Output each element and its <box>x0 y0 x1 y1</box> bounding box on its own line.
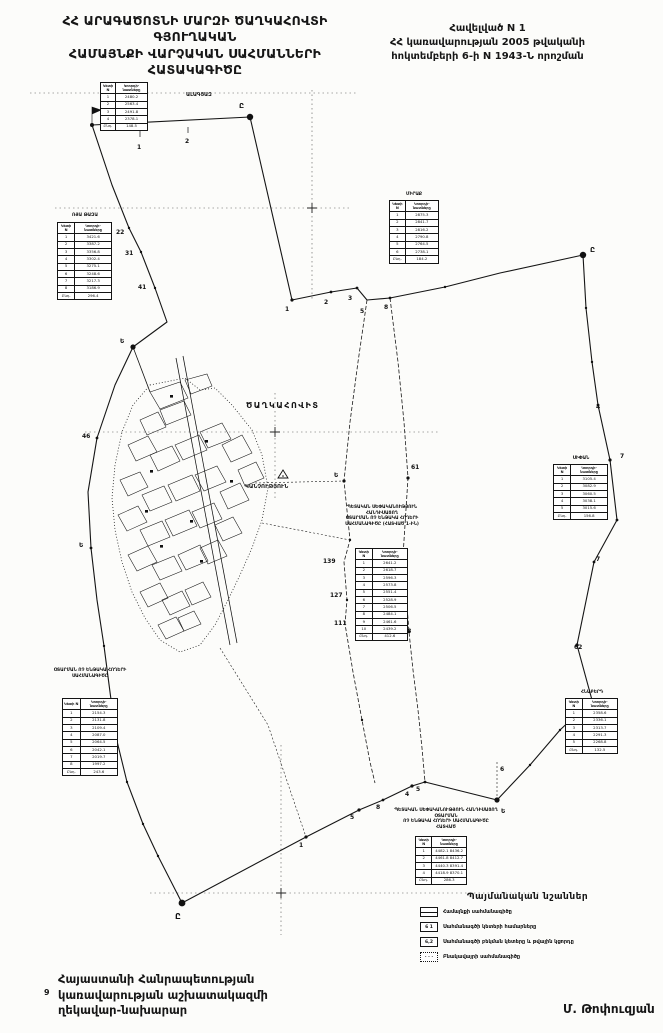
table-row: 32313.7 <box>566 725 618 732</box>
table-row: Ընդ.148.5 <box>101 123 148 130</box>
boundary-point-label: 111 <box>334 620 347 627</box>
table-row: 22336.1 <box>566 717 618 724</box>
table-cell: 2618.7 <box>372 567 407 574</box>
table-cell: 2506.5 <box>372 604 407 611</box>
table-cell: 2790.8 <box>405 234 438 241</box>
boundary-point-label: 7 <box>596 556 600 563</box>
settlement-boundary-line <box>112 378 268 652</box>
table-cell: 2019.7 <box>80 754 117 761</box>
table-cell: 3 <box>58 249 75 256</box>
table-cell: 4 <box>356 582 373 589</box>
table-row: 42291.3 <box>566 732 618 739</box>
table-cell: 2551.4 <box>372 589 407 596</box>
boundary-point-label: 2 <box>324 299 328 306</box>
table-cell: 3 <box>390 227 406 234</box>
table-cell: 4 <box>416 870 432 877</box>
table-cell: 3356.8 <box>75 249 112 256</box>
table-header-cell: Կոորդի- նատները <box>582 699 617 710</box>
issuer-line: Հայաստանի Հանրապետության <box>58 972 318 988</box>
table-row: 22841.7 <box>390 219 439 226</box>
legend-item-label: Բնակավայրի սահմանագիծը <box>443 954 520 960</box>
table-cell: 4 <box>566 732 583 739</box>
table-label: ՀՆԱԲԵՐԴ <box>558 690 626 696</box>
boundary-point-label: 1 <box>137 144 141 151</box>
legend-item: Համայնքի սահմանագիծը <box>420 907 635 917</box>
table-cell: 4 <box>58 256 75 263</box>
table-row: 22563.4 <box>101 101 148 108</box>
table-cell: 2816.2 <box>405 227 438 234</box>
table-cell: 2087.0 <box>80 732 117 739</box>
table-cell: 2 <box>554 483 571 490</box>
table-cell: 6 <box>58 270 75 277</box>
table-cell: 1 <box>566 710 583 717</box>
table-cell: 3302.4 <box>75 256 112 263</box>
section-boundary-line <box>344 298 425 783</box>
table-cell: Ընդ. <box>58 292 75 299</box>
table-header-cell: Կետի N <box>356 549 373 560</box>
table-cell: 4 <box>390 234 406 241</box>
table-label: ՌՅԱ ԹԱԶԱ <box>50 213 120 219</box>
boundary-point-label: 8 <box>384 304 388 311</box>
table-row: Ընդ.156.8 <box>554 512 608 519</box>
map-region-label: ԱԼԱԳՅԱԶ <box>186 92 212 98</box>
table-cell: 3275.1 <box>75 263 112 270</box>
table-row: 12641.2 <box>356 560 408 567</box>
legend-settlement-icon: · · · <box>420 952 438 962</box>
table-cell: 2 <box>416 855 432 862</box>
table-cell: 8 <box>58 285 75 292</box>
table-cell: 5 <box>63 739 81 746</box>
table-row: 92461.6 <box>356 618 408 625</box>
table-cell: 6 <box>390 248 406 255</box>
coordinate-table: Կետի NԿոորդի- նատները12154.322131.832109… <box>62 698 118 776</box>
table-row: 33356.8 <box>58 249 112 256</box>
table-cell: 3082.9 <box>571 483 608 490</box>
settlement-buildings <box>145 395 233 563</box>
table-header-cell: Կոորդի- նատները <box>372 549 407 560</box>
table-cell: 2596.3 <box>372 575 407 582</box>
table-cell: 1 <box>356 560 373 567</box>
table-cell: 2378.1 <box>116 116 148 123</box>
table-cell: 3060.5 <box>571 491 608 498</box>
table-cell: 7 <box>63 754 81 761</box>
access-road-line <box>220 481 497 837</box>
table-row: 13421.6 <box>58 234 112 241</box>
boundary-point-label: 127 <box>330 592 343 599</box>
table-cell: 1 <box>416 848 432 855</box>
table-cell: 9 <box>356 618 373 625</box>
table-cell: 3 <box>554 491 571 498</box>
table-cell: 6 <box>356 596 373 603</box>
table-row: 12154.3 <box>63 710 118 717</box>
table-cell: 3387.2 <box>75 241 112 248</box>
table-cell: 2064.5 <box>80 739 117 746</box>
map-region-label: ԾԱՂԿԱՀՈՎԻՏ <box>246 401 319 410</box>
legend-item-label: Սահմանագծի կետերի համարները <box>443 924 536 930</box>
table-row: Ընդ.286.3 <box>416 877 467 884</box>
table-row: 102439.2 <box>356 626 408 633</box>
table-row: 72019.7 <box>63 754 118 761</box>
table-cell: 4 <box>101 116 116 123</box>
table-row: 83186.9 <box>58 285 112 292</box>
table-cell: 2336.1 <box>582 717 617 724</box>
table-row: 52764.5 <box>390 241 439 248</box>
boundary-point-label: 8 <box>376 804 380 811</box>
table-cell: Ընդ. <box>356 633 373 640</box>
boundary-point-label: 7 <box>620 453 624 460</box>
table-cell: 2563.4 <box>116 101 148 108</box>
table-cell: 1997.2 <box>80 761 117 768</box>
table-row: 12875.3 <box>390 212 439 219</box>
table-cell: 2641.2 <box>372 560 407 567</box>
table-row: 53015.6 <box>554 505 608 512</box>
coordinate-table: Կետի NԿոորդի- նատները14482.1 8436.224461… <box>415 836 467 885</box>
table-cell: 3 <box>356 575 373 582</box>
table-header-cell: Կետի N <box>566 699 583 710</box>
table-cell: 5 <box>356 589 373 596</box>
table-cell: 286.3 <box>432 877 467 884</box>
table-row: 82484.1 <box>356 611 408 618</box>
table-row: 32596.3 <box>356 575 408 582</box>
table-cell: 2491.8 <box>116 109 148 116</box>
table-cell: 7 <box>58 278 75 285</box>
table-header-cell: Կոորդի- նատները <box>432 837 467 848</box>
table-cell: 2 <box>356 567 373 574</box>
boundary-point-label: 62 <box>574 644 582 651</box>
table-cell: 2573.8 <box>372 582 407 589</box>
boundary-point-label: 6 <box>500 766 504 773</box>
table-cell: 2 <box>63 717 81 724</box>
table-cell: 3217.3 <box>75 278 112 285</box>
table-row: 33060.5 <box>554 491 608 498</box>
table-cell: 2528.9 <box>372 596 407 603</box>
boundary-point-label: 41 <box>138 284 146 291</box>
table-row: 72506.5 <box>356 604 408 611</box>
table-cell: 2875.3 <box>405 212 438 219</box>
table-row: 42087.0 <box>63 732 118 739</box>
table-label: ՊԵՏԱԿԱՆ ՍԵՓԱԿԱՆՈՒԹՅՈՒՆ ՀԱՆԴԻՍԱՑՈՂՕՏԱՐՄԱՆ… <box>332 505 432 528</box>
map-region-label: ԿԱՆՉՈՒԹՅՈՒՆ <box>245 484 288 490</box>
table-row: 42378.1 <box>101 116 148 123</box>
table-cell: 2 <box>58 241 75 248</box>
boundary-point-label: Ը <box>175 912 181 921</box>
table-cell: 3421.6 <box>75 234 112 241</box>
coordinate-table: Կետի NԿոորդի- նատները12875.322841.732816… <box>389 200 439 264</box>
boundary-point-label: Ե <box>79 542 83 549</box>
boundary-point-label: 4 <box>405 791 409 798</box>
table-cell: 10 <box>356 626 373 633</box>
table-cell: 8 <box>63 761 81 768</box>
boundary-point-label: 2 <box>185 138 189 145</box>
table-cell: 3186.9 <box>75 285 112 292</box>
table-cell: 5 <box>58 263 75 270</box>
table-cell: 1 <box>101 94 116 101</box>
issuer-line: կառավարության աշխատակազմի <box>58 988 318 1004</box>
table-cell: 3105.4 <box>571 476 608 483</box>
table-header-cell: Կոորդի- նատները <box>75 223 112 234</box>
boundary-point-label: Ե <box>120 338 124 345</box>
table-row: 43038.1 <box>554 498 608 505</box>
scanned-map-page: { "header": { "title_lines": [ "ՀՀ ԱՐԱԳԱ… <box>0 0 663 1033</box>
table-header-cell: Կետի N <box>390 201 406 212</box>
coordinate-table: Կետի NԿոորդի- նատները12641.222618.732596… <box>355 548 408 641</box>
boundary-point-label: 3 <box>348 295 352 302</box>
legend-numbers-icon: 6 1 <box>420 922 438 932</box>
table-cell: 148.5 <box>116 123 148 130</box>
table-row: 14482.1 8436.2 <box>416 848 467 855</box>
table-row: 22618.7 <box>356 567 408 574</box>
table-header-cell: Կոորդի- նատները <box>80 699 117 710</box>
table-row: 24461.8 8412.7 <box>416 855 467 862</box>
legend-item: 6 1Սահմանագծի կետերի համարները <box>420 922 635 932</box>
table-header-cell: Կետի N <box>554 465 571 476</box>
table-row: Ընդ.132.5 <box>566 746 618 753</box>
table-row: Ընդ.296.4 <box>58 292 112 299</box>
coordinate-table: Կետի NԿոորդի- նատները13105.423082.933060… <box>553 464 608 520</box>
table-row: 52551.4 <box>356 589 408 596</box>
table-label: ՄԻՐԱՔ <box>382 192 446 198</box>
table-cell: 6 <box>63 746 81 753</box>
table-row: 62528.9 <box>356 596 408 603</box>
table-row: Ընդ.243.6 <box>63 768 118 775</box>
table-cell: 3 <box>416 863 432 870</box>
table-row: 32491.8 <box>101 109 148 116</box>
table-cell: 8 <box>356 611 373 618</box>
table-cell: Ընդ. <box>63 768 81 775</box>
table-cell: 2131.8 <box>80 717 117 724</box>
table-header-cell: Կոորդի- նատները <box>571 465 608 476</box>
table-row: 63248.6 <box>58 270 112 277</box>
table-cell: 4 <box>554 498 571 505</box>
boundary-point-label: Ե <box>334 472 338 479</box>
coordinate-table: Կետի NԿոորդի- նատները13421.623387.233356… <box>57 222 112 300</box>
legend-item: 6,2Սահմանագծի բեկման կետերը և թվային կցո… <box>420 937 635 947</box>
table-row: 43302.4 <box>58 256 112 263</box>
table-cell: 3 <box>101 109 116 116</box>
table-cell: 2358.6 <box>582 710 617 717</box>
table-cell: Ընդ. <box>390 256 406 263</box>
table-cell: 243.6 <box>80 768 117 775</box>
table-cell: 2841.7 <box>405 219 438 226</box>
table-cell: 3248.6 <box>75 270 112 277</box>
table-row: 32816.2 <box>390 227 439 234</box>
table-cell: 4440.3 8391.4 <box>432 863 467 870</box>
legend: Պայմանական նշաններ Համայնքի սահմանագիծը6… <box>420 892 635 962</box>
mountain-icon <box>278 470 288 478</box>
table-row: 22131.8 <box>63 717 118 724</box>
boundary-point-label: 46 <box>82 433 90 440</box>
boundary-point-label: 61 <box>411 464 419 471</box>
table-header-cell: Կետի N <box>416 837 432 848</box>
table-cell: 4482.1 8436.2 <box>432 848 467 855</box>
boundary-point-label: 22 <box>116 229 124 236</box>
table-cell: 4418.9 8370.1 <box>432 870 467 877</box>
coordinate-table: Կետի NԿոորդի- նատները12480.222563.432491… <box>100 82 148 131</box>
issuer-block: Հայաստանի Հանրապետության կառավարության ա… <box>58 972 318 1019</box>
table-row: 12480.2 <box>101 94 148 101</box>
issuer-line: ղեկավար-նախարար <box>58 1003 318 1019</box>
boundary-point-label: Ը <box>239 102 244 110</box>
table-cell: 412.6 <box>372 633 407 640</box>
legend-distance-icon: 6,2 <box>420 937 438 947</box>
settlement-parcels <box>118 347 264 645</box>
table-header-cell: Կետի N <box>101 83 116 94</box>
boundary-point-label: 31 <box>125 250 133 257</box>
table-row: 52268.8 <box>566 739 618 746</box>
table-cell: 2313.7 <box>582 725 617 732</box>
table-cell: 132.5 <box>582 746 617 753</box>
table-row: Ընդ.412.6 <box>356 633 408 640</box>
table-cell: 5 <box>554 505 571 512</box>
table-cell: Ընդ. <box>566 746 583 753</box>
boundary-point-label: 5 <box>360 308 364 315</box>
table-cell: 2461.6 <box>372 618 407 625</box>
table-row: 13105.4 <box>554 476 608 483</box>
table-cell: 2109.4 <box>80 725 117 732</box>
table-row: 23082.9 <box>554 483 608 490</box>
table-cell: 2764.5 <box>405 241 438 248</box>
boundary-point-label: 1 <box>285 306 289 313</box>
table-cell: 4 <box>63 732 81 739</box>
table-cell: 3 <box>566 725 583 732</box>
table-cell: 184.2 <box>405 256 438 263</box>
table-cell: Ընդ. <box>416 877 432 884</box>
legend-item: · · ·Բնակավայրի սահմանագիծը <box>420 952 635 962</box>
boundary-point-label: 1 <box>299 842 303 849</box>
table-cell: 5 <box>566 739 583 746</box>
boundary-point-label: 4 <box>596 404 600 411</box>
table-cell: 3 <box>63 725 81 732</box>
legend-title: Պայմանական նշաններ <box>420 892 635 902</box>
table-cell: 2 <box>566 717 583 724</box>
page-mark: 9 <box>44 988 50 997</box>
table-header-cell: Կետի N <box>63 699 81 710</box>
table-cell: 1 <box>390 212 406 219</box>
table-cell: Ընդ. <box>554 512 571 519</box>
table-row: 52064.5 <box>63 739 118 746</box>
coordinate-table: Կետի NԿոորդի- նատները12358.622336.132313… <box>565 698 618 754</box>
table-label: ՊԵՏԱԿԱՆ ՍԵՓԱԿԱՆՈՒԹՅՈՒՆ ՀԱՆԴԻՍԱՑՈՂ ՕՏԱՐՄԱ… <box>388 808 504 831</box>
legend-item-label: Համայնքի սահմանագիծը <box>443 909 512 915</box>
table-cell: 2480.2 <box>116 94 148 101</box>
table-cell: 3015.6 <box>571 505 608 512</box>
table-row: 12358.6 <box>566 710 618 717</box>
table-cell: 296.4 <box>75 292 112 299</box>
table-row: 62042.1 <box>63 746 118 753</box>
table-cell: 4461.8 8412.7 <box>432 855 467 862</box>
table-row: 44418.9 8370.1 <box>416 870 467 877</box>
table-row: 23387.2 <box>58 241 112 248</box>
boundary-point-label: 5 <box>416 786 420 793</box>
table-cell: 2439.2 <box>372 626 407 633</box>
table-cell: 2484.1 <box>372 611 407 618</box>
table-cell: 2042.1 <box>80 746 117 753</box>
table-cell: 7 <box>356 604 373 611</box>
table-cell: 3038.1 <box>571 498 608 505</box>
table-row: Ընդ.184.2 <box>390 256 439 263</box>
table-row: 42573.8 <box>356 582 408 589</box>
boundary-point-label: 5 <box>350 814 354 821</box>
table-cell: 2738.1 <box>405 248 438 255</box>
table-cell: 1 <box>63 710 81 717</box>
legend-items: Համայնքի սահմանագիծը6 1Սահմանագծի կետերի… <box>420 907 635 962</box>
table-cell: 2 <box>390 219 406 226</box>
table-cell: 2154.3 <box>80 710 117 717</box>
table-row: 81997.2 <box>63 761 118 768</box>
table-row: 32109.4 <box>63 725 118 732</box>
table-row: 62738.1 <box>390 248 439 255</box>
table-row: 73217.3 <box>58 278 112 285</box>
signature: Մ. Թոփուզյան <box>563 1002 655 1016</box>
table-cell: 5 <box>390 241 406 248</box>
table-label: ՍԻՓԱՆ <box>546 456 616 462</box>
table-cell: 2291.3 <box>582 732 617 739</box>
grid-cross-icon <box>270 203 317 898</box>
legend-item-label: Սահմանագծի բեկման կետերը և թվային կցորդը <box>443 939 574 945</box>
table-label: ՕՏԱՐՄԱՆ ՈՉ ԵՆԹԱԿԱ ՀՈՂԵՐԻՍԱՀՄԱՆԱԳԻԾԸ <box>40 668 140 679</box>
table-row: 53275.1 <box>58 263 112 270</box>
table-header-cell: Կոորդի- նատները <box>405 201 438 212</box>
table-header-cell: Կետի N <box>58 223 75 234</box>
boundary-point-label: Ը <box>590 246 595 254</box>
boundary-point-label: 139 <box>323 558 336 565</box>
table-row: 34440.3 8391.4 <box>416 863 467 870</box>
legend-boundary-icon <box>420 907 438 917</box>
table-cell: Ընդ. <box>101 123 116 130</box>
table-cell: 1 <box>554 476 571 483</box>
table-cell: 1 <box>58 234 75 241</box>
table-row: 42790.8 <box>390 234 439 241</box>
table-cell: 2268.8 <box>582 739 617 746</box>
table-header-cell: Կոորդի- նատները <box>116 83 148 94</box>
table-cell: 2 <box>101 101 116 108</box>
table-cell: 156.8 <box>571 512 608 519</box>
